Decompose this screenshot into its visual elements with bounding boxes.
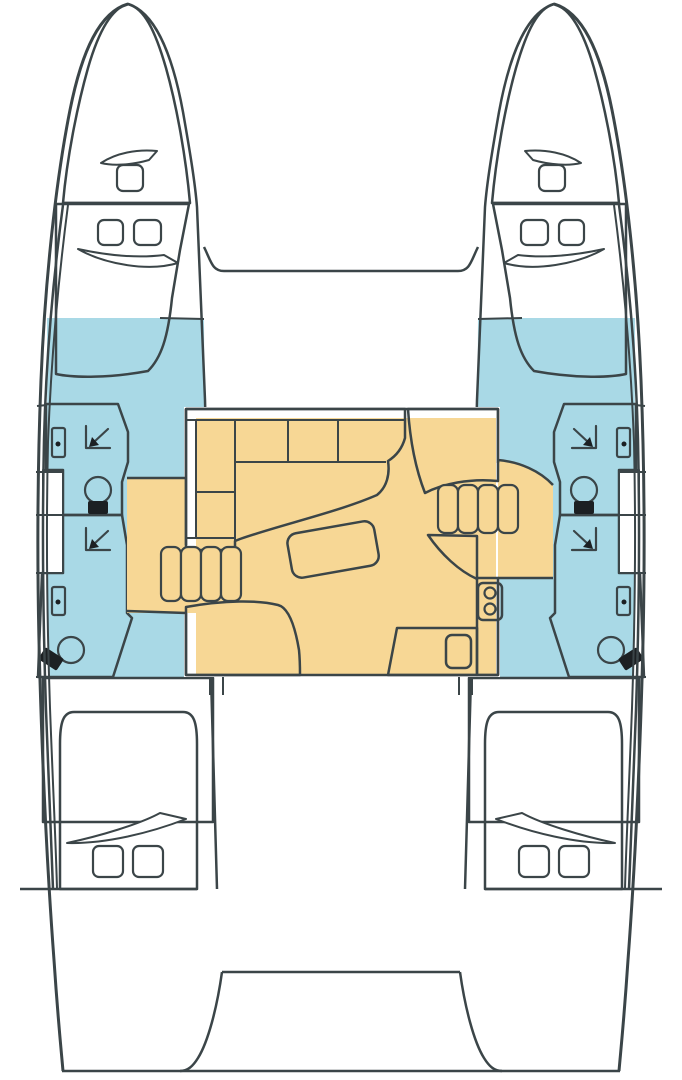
saloon [127,407,553,677]
fore-cabin-hatch-2 [134,220,161,245]
port-stairs [161,547,241,601]
sink-forward-drain [56,442,61,447]
fore-cabin-hatch-1 [98,220,123,245]
catamaran-floorplan [0,0,682,1080]
cockpit-transom [180,972,502,1071]
aft-cabin-hatch-2 [133,846,163,877]
aft-cabin-swoosh [67,813,186,843]
toilet-forward-seat [88,501,108,514]
floorplan-canvas [0,0,682,1080]
fore-cabin-swoosh [78,249,178,267]
trampoline-beam [204,247,478,271]
aft-cabin-hatch-1 [93,846,123,877]
bow-hatch [117,165,143,191]
starboard-stairs [438,485,518,533]
sink-aft-drain [56,600,61,605]
bow-window-swoosh [101,151,157,165]
port-aft-berth [60,712,197,889]
port-aft-cabin [43,678,213,822]
deck-tick-1 [37,405,47,406]
cabin-forward-bulkhead [160,318,204,319]
